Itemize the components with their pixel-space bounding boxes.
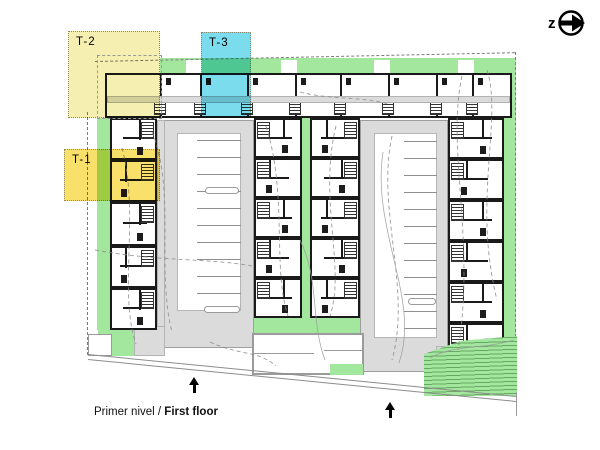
type-t1-label: T-1 — [72, 154, 92, 166]
unit-module — [254, 158, 302, 198]
walkway-bottom-left — [134, 326, 165, 356]
patio — [330, 364, 363, 375]
unit-module — [254, 238, 302, 278]
parking-stalls-2 — [404, 141, 437, 335]
unit-module — [448, 200, 504, 241]
unit-module — [448, 241, 504, 282]
unit-module — [254, 278, 302, 318]
porch-notch — [186, 60, 202, 73]
gallery-top-block — [107, 96, 510, 103]
unit-module — [110, 202, 157, 246]
north-indicator: z — [548, 8, 589, 38]
unit-module — [448, 118, 504, 159]
type-t3-label: T-3 — [209, 37, 229, 49]
unit-module — [448, 282, 504, 323]
unit-module — [254, 118, 302, 158]
caption-spanish: Primer nivel / — [94, 406, 164, 418]
arrow-head — [189, 377, 199, 385]
porch-notch — [458, 60, 474, 73]
type-t3-highlight: T-3 — [201, 32, 251, 118]
unit-module — [110, 246, 157, 288]
unit-module — [310, 158, 360, 198]
unit-module — [310, 118, 360, 158]
fixture — [301, 78, 306, 85]
site-plan: T-2 T-3 T-1 z Primer nivel / First floor — [0, 0, 600, 450]
type-t1-highlight: T-1 — [64, 149, 160, 201]
north-arrow-icon — [557, 8, 589, 38]
parking-stalls-1 — [197, 140, 241, 308]
entrance-arrow-left — [188, 377, 200, 393]
caption-english: First floor — [164, 406, 218, 418]
north-label: z — [548, 15, 556, 32]
unit-module — [310, 278, 360, 318]
unit-module — [310, 198, 360, 238]
porch-notch — [374, 60, 390, 73]
fixture — [253, 78, 258, 85]
fixture — [394, 78, 399, 85]
type-t2-extent-outline — [97, 55, 162, 119]
parking-island — [408, 298, 436, 305]
boundary-right — [515, 52, 516, 337]
parking-island — [204, 306, 240, 313]
parking-island — [205, 187, 239, 194]
stall-divider — [254, 353, 314, 354]
drawing-caption: Primer nivel / First floor — [94, 406, 218, 418]
fixture — [166, 78, 171, 85]
unit-module — [110, 288, 157, 330]
porch-notch — [281, 60, 297, 73]
arrow-stem — [193, 385, 196, 393]
street-end — [516, 392, 517, 416]
type-t2-label: T-2 — [76, 36, 96, 48]
fixture — [346, 78, 351, 85]
kiosk — [88, 334, 112, 356]
unit-module — [254, 198, 302, 238]
fixture — [442, 78, 447, 85]
unit-module — [310, 238, 360, 278]
arrow-stem — [389, 410, 392, 418]
stall-divider — [324, 350, 362, 351]
landscape-mid-bottom — [250, 318, 362, 333]
unit-module — [448, 159, 504, 200]
fixture — [478, 78, 483, 85]
arrow-head — [385, 402, 395, 410]
entrance-arrow-right — [384, 402, 396, 418]
